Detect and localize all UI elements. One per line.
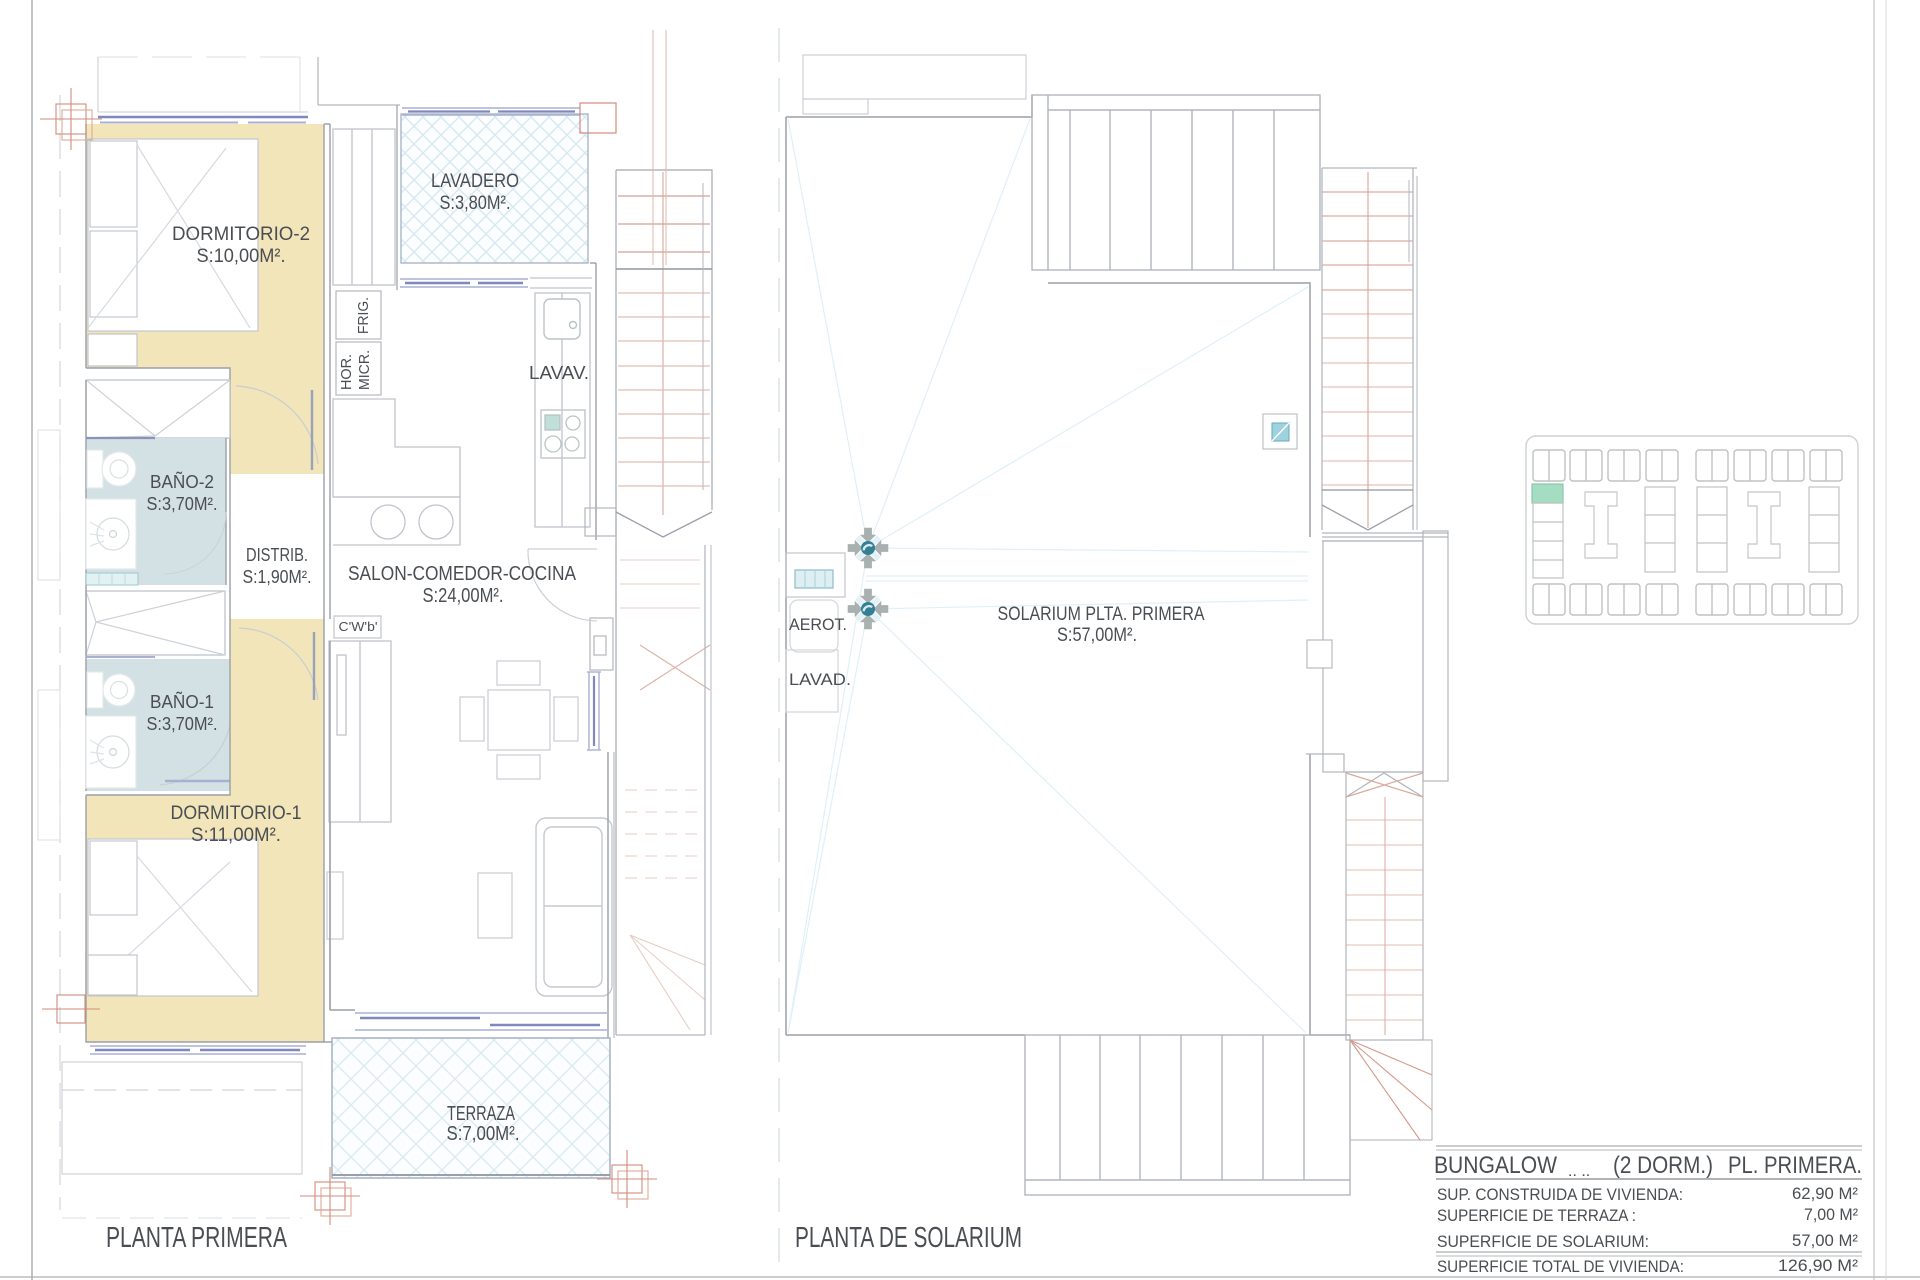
svg-text:LAVAD.: LAVAD. [789, 671, 851, 689]
svg-text:62,90 M²: 62,90 M² [1792, 1184, 1858, 1203]
svg-text:TERRAZA: TERRAZA [447, 1103, 515, 1125]
svg-text:MICR.: MICR. [356, 350, 373, 390]
svg-text:BAÑO-1: BAÑO-1 [150, 691, 214, 712]
svg-text:7,00 M²: 7,00 M² [1804, 1205, 1858, 1224]
svg-text:DORMITORIO-2: DORMITORIO-2 [172, 224, 310, 245]
svg-text:DORMITORIO-1: DORMITORIO-1 [171, 803, 302, 824]
svg-text:PLANTA DE SOLARIUM: PLANTA DE SOLARIUM [795, 1222, 1022, 1254]
svg-text:SUPERFICIE DE SOLARIUM:: SUPERFICIE DE SOLARIUM: [1437, 1232, 1649, 1251]
svg-text:AEROT.: AEROT. [789, 616, 847, 634]
svg-text:C'W'b': C'W'b' [339, 619, 378, 634]
svg-text:S:10,00M².: S:10,00M². [197, 246, 286, 267]
svg-text:LAVAV.: LAVAV. [529, 363, 589, 383]
svg-text:PLANTA PRIMERA: PLANTA PRIMERA [106, 1222, 287, 1254]
svg-text:SALON-COMEDOR-COCINA: SALON-COMEDOR-COCINA [348, 563, 577, 585]
svg-text:S:7,00M².: S:7,00M². [447, 1123, 520, 1145]
svg-text:SOLARIUM PLTA. PRIMERA: SOLARIUM PLTA. PRIMERA [998, 604, 1205, 625]
svg-text:LAVADERO: LAVADERO [431, 171, 519, 192]
svg-text:.. ..: .. .. [1568, 1163, 1590, 1180]
svg-text:S:1,90M².: S:1,90M². [243, 567, 312, 587]
svg-text:S:57,00M².: S:57,00M². [1057, 625, 1137, 646]
svg-text:(2 DORM.): (2 DORM.) [1613, 1152, 1713, 1179]
svg-text:FRIG.: FRIG. [355, 297, 372, 334]
svg-text:SUP. CONSTRUIDA DE VIVIENDA:: SUP. CONSTRUIDA DE VIVIENDA: [1437, 1185, 1683, 1204]
svg-text:S:11,00M².: S:11,00M². [191, 825, 281, 846]
svg-text:HOR.: HOR. [338, 354, 355, 390]
svg-text:126,90 M²: 126,90 M² [1778, 1256, 1858, 1275]
svg-text:DISTRIB.: DISTRIB. [246, 545, 308, 565]
svg-text:S:3,70M².: S:3,70M². [147, 494, 218, 514]
svg-text:SUPERFICIE DE TERRAZA :: SUPERFICIE DE TERRAZA : [1437, 1206, 1636, 1225]
svg-text:BUNGALOW: BUNGALOW [1434, 1152, 1557, 1179]
svg-text:SUPERFICIE TOTAL DE VIVIENDA:: SUPERFICIE TOTAL DE VIVIENDA: [1437, 1257, 1684, 1276]
svg-text:S:3,80M².: S:3,80M². [440, 193, 511, 214]
svg-text:PL. PRIMERA.: PL. PRIMERA. [1728, 1152, 1862, 1179]
svg-text:BAÑO-2: BAÑO-2 [150, 471, 214, 492]
svg-text:57,00 M²: 57,00 M² [1792, 1231, 1858, 1250]
svg-text:S:24,00M².: S:24,00M². [423, 585, 504, 607]
svg-text:S:3,70M².: S:3,70M². [147, 714, 218, 734]
